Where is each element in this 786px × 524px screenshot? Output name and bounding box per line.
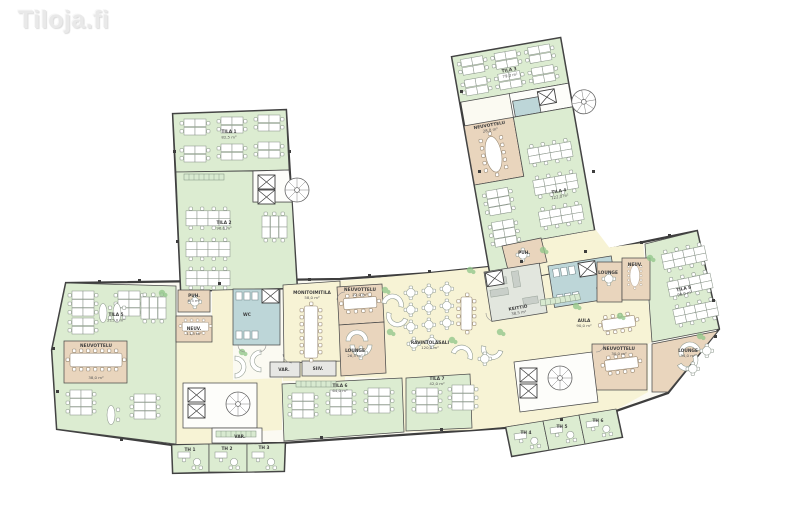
room-area: 120,0 m²	[421, 345, 439, 350]
desk-cluster	[66, 390, 96, 415]
room-area: 30,0 m²	[611, 351, 627, 356]
desk-cluster	[141, 293, 166, 323]
room-label: TH 4	[520, 430, 531, 436]
elevator	[258, 175, 275, 189]
room-label: TH 3	[258, 445, 269, 451]
room-label: TH 5	[556, 424, 567, 430]
room-label: SIIV.	[313, 366, 324, 372]
room-area: 90,0 m²	[576, 323, 592, 328]
tiloja-logo: Tiloja.fi	[18, 6, 110, 35]
elevator	[578, 261, 597, 277]
desk-cluster	[448, 385, 478, 410]
room-label: PUH.	[518, 250, 530, 256]
desk-cluster	[326, 390, 356, 415]
desk-cluster	[130, 394, 160, 419]
room-area: 22,0 m²	[352, 292, 368, 297]
room-label: VAR.	[234, 434, 246, 440]
elevator	[262, 289, 279, 303]
desk-cluster	[262, 212, 287, 242]
room-area: 58,0 m²	[304, 295, 320, 300]
spiral-stair	[226, 392, 250, 416]
room-area: 82,5 m²	[221, 135, 237, 140]
room-label: VAR.	[278, 367, 290, 373]
elevator	[258, 190, 275, 204]
conference-table	[66, 349, 126, 371]
desk-cluster	[68, 291, 98, 316]
floor-plan-page: TILA 3 79,0 m² NEUVOTTELU 28,0 m² TILA 4…	[0, 0, 786, 524]
room-area: 215,0 m²	[107, 318, 125, 323]
room-th4	[506, 421, 549, 456]
locker-cabinets	[184, 174, 224, 180]
elevator	[188, 388, 205, 402]
room-label: NEUVOTTELU	[80, 343, 112, 349]
room-area: 64,0 m²	[332, 388, 348, 393]
elevator	[520, 384, 537, 398]
desk-cluster	[412, 388, 442, 413]
spiral-stair	[548, 366, 572, 390]
room-label: TH 2	[221, 446, 232, 452]
room-area: 42,0 m²	[429, 381, 445, 386]
elevator	[188, 404, 205, 418]
elevator	[485, 270, 504, 286]
room-label: TH 1	[184, 447, 195, 453]
locker-cabinets	[296, 381, 336, 387]
room-th5	[543, 415, 585, 450]
room-area: 34,0 m²	[680, 353, 696, 358]
desk-cluster	[364, 388, 394, 413]
room-label: TH 6	[592, 418, 603, 424]
room-area: 26,5 m²	[347, 353, 363, 358]
floor-plan-canvas: TILA 3 79,0 m² NEUVOTTELU 28,0 m² TILA 4…	[0, 0, 786, 524]
room-area: 96,0 m²	[216, 226, 232, 231]
desk-cluster	[288, 393, 318, 418]
room-area: 11,5 m²	[186, 331, 202, 336]
room-area: 6,5 m²	[188, 298, 201, 303]
room-label: LOUNGE	[598, 270, 618, 276]
room-label: NEUV.	[628, 262, 643, 268]
elevator	[520, 368, 537, 382]
spiral-stair	[285, 178, 309, 202]
elevator	[537, 89, 556, 106]
room-label: WC	[243, 312, 251, 318]
conference-table	[300, 302, 322, 362]
room-area: 38,0 m²	[88, 375, 104, 380]
room-kitchen: KEITTIÖ 38,5 m²	[484, 263, 547, 321]
